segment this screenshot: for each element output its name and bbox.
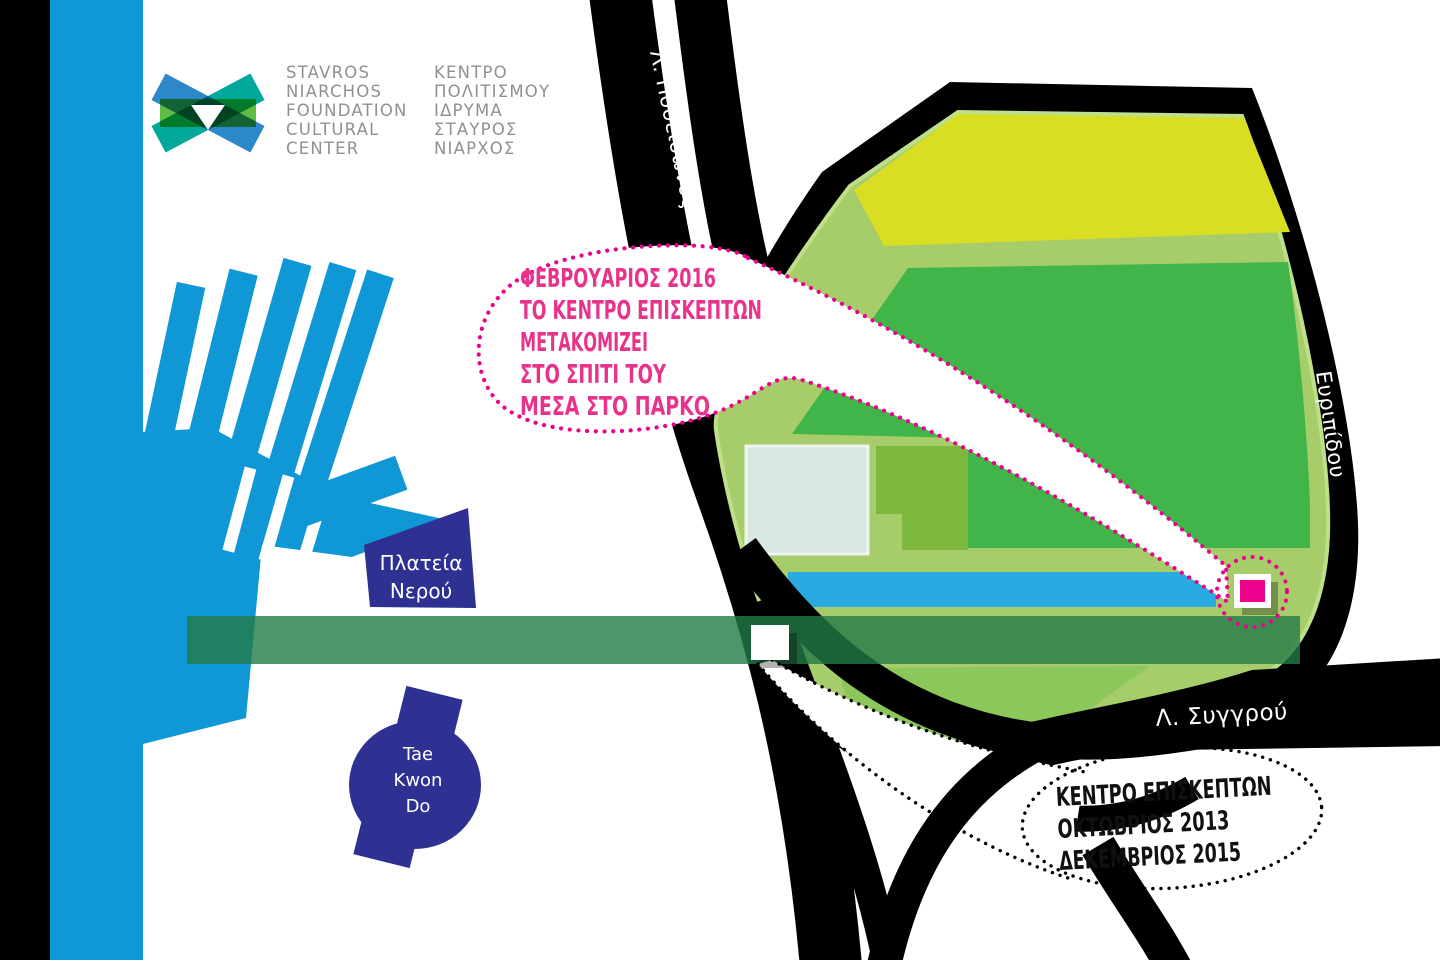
- plateia-nerou-label-line2: Νερού: [390, 579, 452, 603]
- pink-line-1: ΦΕΒΡΟΥΑΡΙΟΣ 2016: [520, 264, 716, 294]
- snfcc-area-map: Πλατεία Νερού Tae Kwon Do Λ.: [0, 0, 1440, 960]
- pink-line-2: ΤΟ ΚΕΝΤΡΟ ΕΠΙΣΚΕΠΤΩΝ: [520, 296, 762, 326]
- logo-el-line5: ΝΙΑΡΧΟΣ: [434, 139, 516, 158]
- white-marker-square[interactable]: [751, 625, 789, 660]
- logo-el-line1: ΚΕΝΤΡΟ: [434, 63, 508, 82]
- tkd-label-line2: Kwon: [394, 770, 443, 791]
- pink-line-4: ΣΤΟ ΣΠΙΤΙ ΤΟΥ: [520, 360, 667, 390]
- tkd-label-line1: Tae: [402, 744, 433, 765]
- logo-el-line4: ΣΤΑΥΡΟΣ: [434, 120, 518, 139]
- water-column: [50, 0, 143, 960]
- logo-en-line3: FOUNDATION: [286, 101, 408, 120]
- pink-line-3: ΜΕΤΑΚΟΜΙΖΕΙ: [520, 328, 648, 358]
- pink-marker-square[interactable]: [1240, 580, 1265, 602]
- logo-en-line4: CULTURAL: [286, 120, 380, 139]
- logo-en-line5: CENTER: [286, 139, 359, 158]
- esplanade-band: [187, 616, 1300, 664]
- logo-el-line2: ΠΟΛΙΤΙΣΜΟΥ: [434, 82, 550, 101]
- pink-line-5: ΜΕΣΑ ΣΤΟ ΠΑΡΚΟ: [520, 392, 710, 422]
- tkd-label-line3: Do: [406, 796, 431, 817]
- logo-en-line2: NIARCHOS: [286, 82, 382, 101]
- left-black-edge: [0, 0, 50, 960]
- plateia-nerou-label-line1: Πλατεία: [380, 551, 463, 575]
- logo-el-line3: ΙΔΡΥΜΑ: [434, 101, 503, 120]
- logo-en-line1: STAVROS: [286, 63, 370, 82]
- building-opera-hall: [746, 446, 868, 554]
- park-canal: [788, 572, 1216, 607]
